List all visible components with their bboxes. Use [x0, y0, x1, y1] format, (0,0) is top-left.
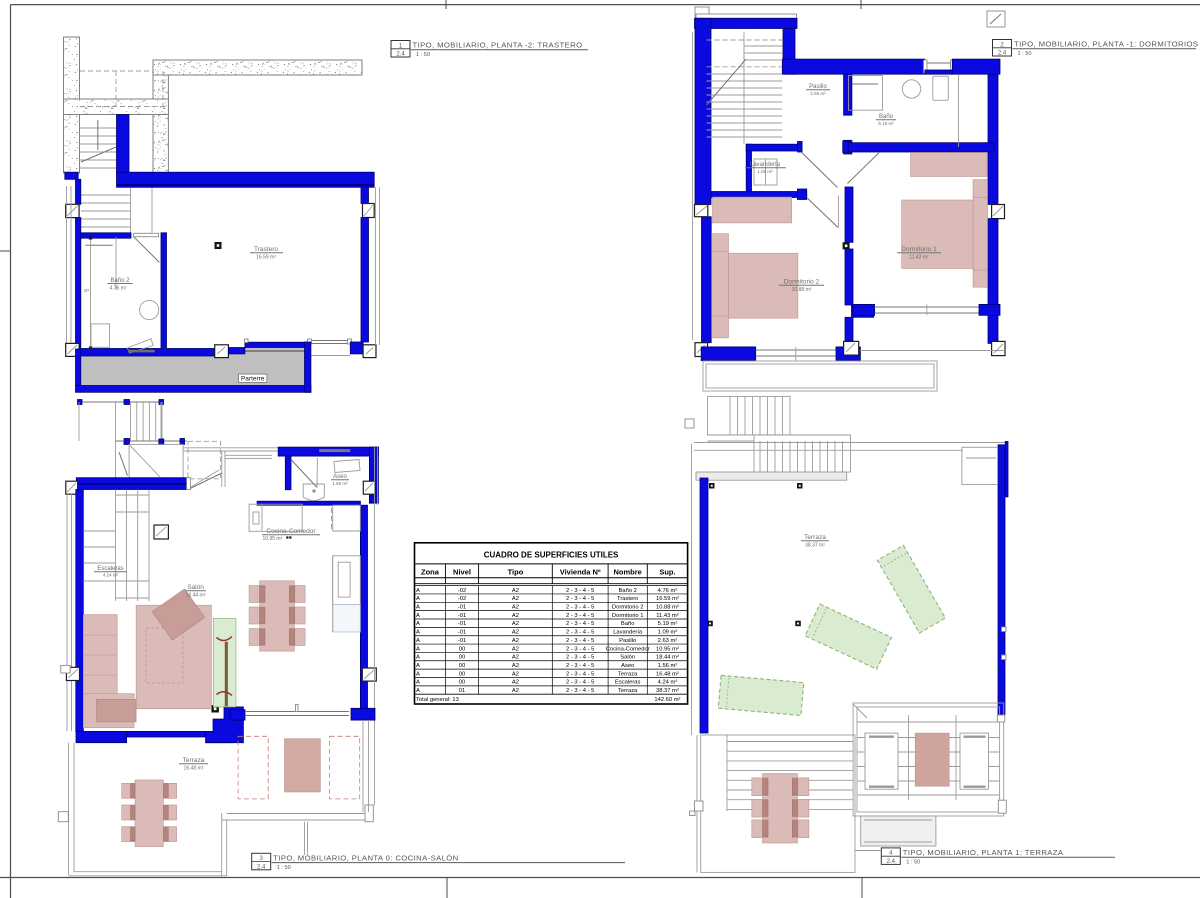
svg-text:4.24 m²: 4.24 m² — [103, 573, 119, 578]
svg-text:16.48 m²: 16.48 m² — [656, 671, 679, 677]
svg-text:38.37 m²: 38.37 m² — [805, 543, 825, 549]
svg-text:1 : 50: 1 : 50 — [416, 52, 430, 58]
svg-text:Escaleras: Escaleras — [615, 680, 641, 686]
svg-text:Parterre: Parterre — [241, 376, 265, 383]
svg-text:Aseo: Aseo — [333, 474, 347, 480]
svg-text:2 - 3 - 4 - 5: 2 - 3 - 4 - 5 — [566, 596, 594, 602]
svg-text:00: 00 — [459, 680, 465, 686]
svg-text:A: A — [416, 596, 420, 602]
svg-text:2.63 m²: 2.63 m² — [658, 638, 678, 644]
svg-text:Terraza: Terraza — [618, 671, 638, 677]
svg-text:Cocina-Comedor: Cocina-Comedor — [606, 646, 650, 652]
svg-text:5.19 m²: 5.19 m² — [658, 621, 678, 627]
svg-text:1.09 m²: 1.09 m² — [757, 169, 773, 174]
svg-text:-02: -02 — [458, 588, 466, 594]
svg-text:A: A — [416, 646, 420, 652]
svg-text:TIPO, MOBILIARIO, PLANTA -1: D: TIPO, MOBILIARIO, PLANTA -1: DORMITORIOS — [1014, 40, 1198, 49]
svg-text:00: 00 — [459, 663, 465, 669]
svg-text:A2: A2 — [512, 688, 519, 694]
svg-text:Sup.: Sup. — [659, 568, 675, 577]
svg-text:2.4: 2.4 — [257, 864, 266, 870]
svg-text:00: 00 — [459, 671, 465, 677]
svg-text:A2: A2 — [512, 655, 519, 661]
svg-text:2 - 3 - 4 - 5: 2 - 3 - 4 - 5 — [566, 630, 594, 636]
svg-text:Dormitorio 2: Dormitorio 2 — [784, 279, 820, 286]
svg-text:1 : 50: 1 : 50 — [277, 865, 291, 871]
svg-text:10.95 m²: 10.95 m² — [656, 646, 679, 652]
svg-text:Lavandería: Lavandería — [750, 162, 781, 168]
svg-text:18.44 m²: 18.44 m² — [186, 593, 206, 599]
svg-text:A2: A2 — [512, 588, 519, 594]
svg-text:16.48 m²: 16.48 m² — [184, 766, 204, 772]
svg-text:Nombre: Nombre — [614, 568, 642, 577]
svg-text:1 : 50: 1 : 50 — [1018, 51, 1032, 57]
svg-text:Salón: Salón — [187, 584, 204, 591]
svg-text:2 - 3 - 4 - 5: 2 - 3 - 4 - 5 — [566, 655, 594, 661]
svg-text:Terraza: Terraza — [618, 688, 638, 694]
svg-text:Trastero: Trastero — [617, 596, 638, 602]
svg-text:A: A — [416, 655, 420, 661]
svg-text:10.88 m²: 10.88 m² — [792, 287, 812, 293]
svg-text:A: A — [416, 663, 420, 669]
svg-text:Tipo: Tipo — [508, 568, 524, 577]
svg-text:2 - 3 - 4 - 5: 2 - 3 - 4 - 5 — [566, 671, 594, 677]
svg-text:A: A — [416, 688, 420, 694]
svg-text:Vivienda Nº: Vivienda Nº — [560, 568, 601, 577]
svg-text:A2: A2 — [512, 680, 519, 686]
svg-text:2 - 3 - 4 - 5: 2 - 3 - 4 - 5 — [566, 605, 594, 611]
svg-text:Trastero: Trastero — [254, 246, 278, 253]
svg-text:A2: A2 — [512, 663, 519, 669]
svg-text:38.37 m²: 38.37 m² — [656, 688, 679, 694]
svg-text:A2: A2 — [512, 605, 519, 611]
svg-text:A: A — [416, 621, 420, 627]
svg-text:TIPO, MOBILIARIO, PLANTA 0: CO: TIPO, MOBILIARIO, PLANTA 0: COCINA-SALÓN — [273, 854, 458, 863]
svg-text:4.24 m²: 4.24 m² — [658, 680, 678, 686]
svg-text:A2: A2 — [512, 638, 519, 644]
svg-text:2 - 3 - 4 - 5: 2 - 3 - 4 - 5 — [566, 588, 594, 594]
svg-text:Dormitorio 1: Dormitorio 1 — [612, 613, 644, 619]
svg-text:Baño 2: Baño 2 — [619, 588, 637, 594]
svg-text:16.59 m²: 16.59 m² — [256, 255, 276, 261]
svg-text:A: A — [416, 671, 420, 677]
svg-text:Escaleras: Escaleras — [97, 566, 123, 572]
svg-text:2 - 3 - 4 - 5: 2 - 3 - 4 - 5 — [566, 613, 594, 619]
svg-text:A2: A2 — [512, 613, 519, 619]
svg-text:Nivel: Nivel — [453, 568, 471, 577]
svg-text:Baño 2: Baño 2 — [110, 278, 130, 284]
svg-text:-01: -01 — [458, 613, 466, 619]
svg-text:-01: -01 — [458, 630, 466, 636]
svg-text:4.76 m²: 4.76 m² — [110, 286, 127, 292]
svg-text:2 - 3 - 4 - 5: 2 - 3 - 4 - 5 — [566, 663, 594, 669]
svg-text:Lavandería: Lavandería — [613, 630, 643, 636]
svg-text:A2: A2 — [512, 630, 519, 636]
svg-text:5.19 m²: 5.19 m² — [878, 121, 894, 126]
svg-text:2 - 3 - 4 - 5: 2 - 3 - 4 - 5 — [566, 646, 594, 652]
svg-text:00: 00 — [459, 646, 465, 652]
svg-text:Dormitorio 1: Dormitorio 1 — [901, 246, 937, 253]
svg-text:-01: -01 — [458, 638, 466, 644]
svg-text:1.56 m²: 1.56 m² — [658, 663, 678, 669]
svg-text:A: A — [416, 605, 420, 611]
svg-text:A: A — [416, 630, 420, 636]
svg-text:CUADRO DE SUPERFICIES UTILES: CUADRO DE SUPERFICIES UTILES — [484, 551, 619, 560]
svg-text:Aseo: Aseo — [621, 663, 634, 669]
svg-text:TIPO, MOBILIARIO, PLANTA -2: T: TIPO, MOBILIARIO, PLANTA -2: TRASTERO — [413, 41, 583, 50]
svg-text:Total general: 13: Total general: 13 — [416, 697, 459, 703]
svg-text:A: A — [416, 588, 420, 594]
svg-text:Pasillo: Pasillo — [619, 638, 636, 644]
svg-text:11.43 m²: 11.43 m² — [909, 255, 929, 261]
svg-text:10.95 m²: 10.95 m² — [263, 536, 283, 542]
svg-text:2.4: 2.4 — [396, 52, 405, 58]
svg-text:2P: 2P — [84, 288, 90, 293]
svg-text:Terraza: Terraza — [183, 757, 205, 764]
svg-text:142.60 m²: 142.60 m² — [654, 697, 680, 703]
svg-text:1 : 50: 1 : 50 — [906, 859, 920, 865]
svg-text:11.43 m²: 11.43 m² — [656, 613, 679, 619]
svg-text:-01: -01 — [458, 605, 466, 611]
svg-text:A2: A2 — [512, 596, 519, 602]
svg-text:Dormitorio 2: Dormitorio 2 — [612, 605, 644, 611]
svg-text:2.4: 2.4 — [887, 859, 896, 865]
svg-text:A2: A2 — [512, 621, 519, 627]
svg-text:Terraza: Terraza — [804, 534, 826, 541]
svg-text:2 - 3 - 4 - 5: 2 - 3 - 4 - 5 — [566, 638, 594, 644]
svg-text:TIPO, MOBILIARIO, PLANTA 1: TE: TIPO, MOBILIARIO, PLANTA 1: TERRAZA — [903, 848, 1064, 857]
svg-text:Cocina-Comedor: Cocina-Comedor — [266, 528, 316, 535]
svg-text:01: 01 — [459, 688, 465, 694]
svg-text:2 - 3 - 4 - 5: 2 - 3 - 4 - 5 — [566, 621, 594, 627]
svg-text:4.76 m²: 4.76 m² — [658, 588, 678, 594]
svg-text:A: A — [416, 613, 420, 619]
svg-text:-02: -02 — [458, 596, 466, 602]
svg-text:2 - 3 - 4 - 5: 2 - 3 - 4 - 5 — [566, 688, 594, 694]
svg-text:A2: A2 — [512, 671, 519, 677]
svg-text:18.44 m²: 18.44 m² — [656, 655, 679, 661]
svg-text:1.09 m²: 1.09 m² — [658, 630, 678, 636]
svg-text:2 - 3 - 4 - 5: 2 - 3 - 4 - 5 — [566, 680, 594, 686]
svg-text:Baño: Baño — [621, 621, 635, 627]
svg-text:Pasillo: Pasillo — [809, 84, 827, 90]
svg-text:16.59 m²: 16.59 m² — [656, 596, 679, 602]
svg-text:-01: -01 — [458, 621, 466, 627]
svg-text:Zona: Zona — [421, 568, 440, 577]
svg-text:Salón: Salón — [620, 655, 635, 661]
svg-text:A: A — [416, 638, 420, 644]
svg-text:2.4: 2.4 — [998, 51, 1007, 57]
svg-text:A: A — [416, 680, 420, 686]
svg-text:10.88 m²: 10.88 m² — [656, 605, 679, 611]
svg-text:1.56 m²: 1.56 m² — [332, 481, 348, 486]
svg-text:2.65 m²: 2.65 m² — [810, 91, 826, 96]
svg-text:00: 00 — [459, 655, 465, 661]
svg-text:Baño: Baño — [879, 114, 894, 120]
svg-text:A2: A2 — [512, 646, 519, 652]
